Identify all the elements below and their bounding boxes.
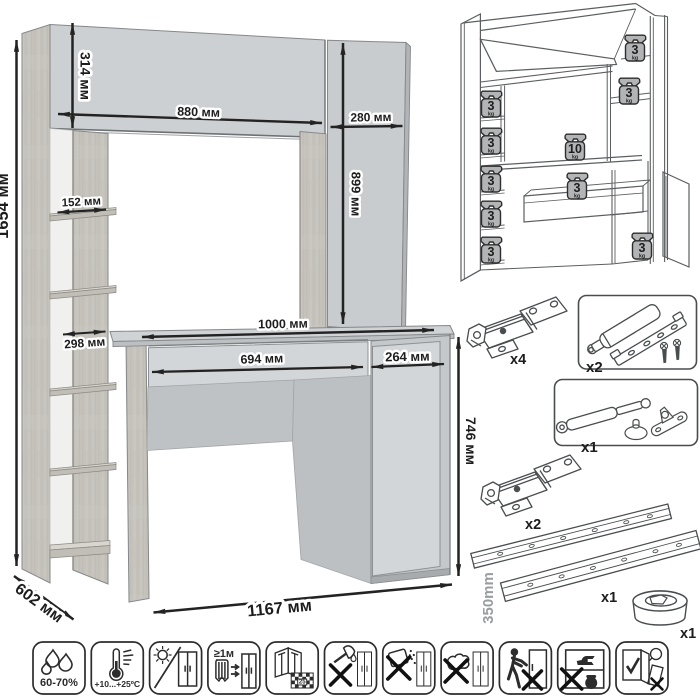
svg-text:350mm: 350mm (480, 572, 497, 624)
svg-text:kg: kg (488, 222, 494, 228)
svg-text:694 мм: 694 мм (240, 351, 283, 366)
svg-text:314 мм: 314 мм (78, 52, 94, 100)
svg-text:264 мм: 264 мм (385, 349, 430, 365)
svg-text:kg: kg (639, 254, 645, 260)
svg-text:x2: x2 (586, 359, 603, 376)
svg-text:152 мм: 152 мм (61, 195, 101, 209)
svg-text:kg: kg (488, 258, 494, 264)
svg-text:kg: kg (574, 194, 580, 200)
svg-text:1000 мм: 1000 мм (258, 317, 308, 332)
svg-text:x1: x1 (601, 590, 617, 606)
svg-text:≥1м: ≥1м (214, 648, 234, 660)
svg-text:kg: kg (488, 112, 494, 118)
svg-text:kg: kg (572, 155, 578, 161)
svg-text:746 мм: 746 мм (463, 417, 479, 465)
svg-text:880 мм: 880 мм (177, 104, 220, 119)
svg-text:899 мм: 899 мм (349, 172, 364, 217)
svg-text:x1: x1 (680, 626, 696, 642)
svg-text:x2: x2 (525, 517, 541, 533)
svg-text:kg: kg (488, 149, 494, 155)
svg-text:x1: x1 (581, 439, 598, 456)
svg-text:x4: x4 (510, 352, 526, 368)
svg-text:1654 мм: 1654 мм (0, 173, 12, 239)
svg-text:298 мм: 298 мм (64, 335, 106, 352)
svg-text:280 мм: 280 мм (350, 110, 391, 125)
svg-text:kg: kg (632, 56, 638, 62)
svg-text:+10...+25ºC: +10...+25ºC (94, 679, 140, 689)
svg-text:60-70%: 60-70% (40, 677, 78, 689)
svg-text:25: 25 (299, 680, 306, 686)
svg-text:kg: kg (488, 187, 494, 193)
svg-text:kg: kg (626, 99, 632, 105)
